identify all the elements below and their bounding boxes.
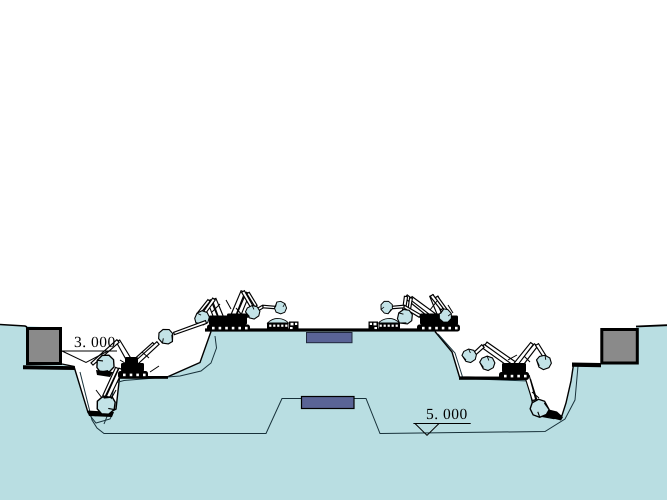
svg-text:5. 000: 5. 000 bbox=[426, 406, 468, 423]
svg-text:3. 000: 3. 000 bbox=[74, 334, 116, 351]
